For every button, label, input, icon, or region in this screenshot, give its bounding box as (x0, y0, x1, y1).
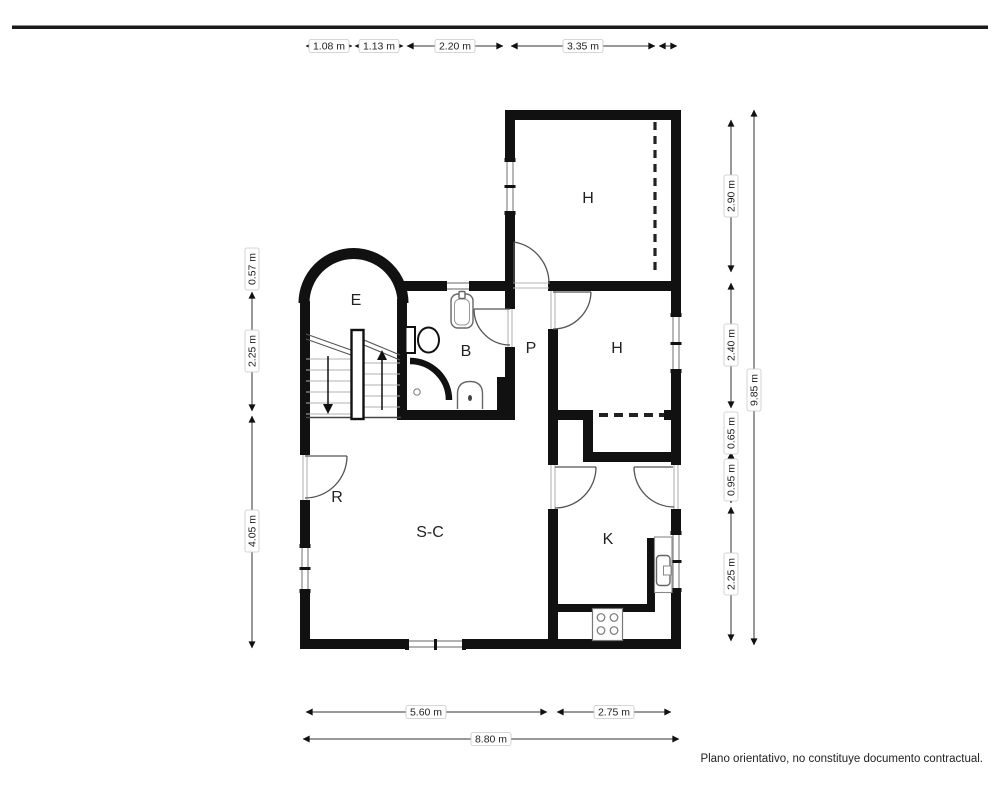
floor-plan-canvas: H E B P H R S-C K 1.08 m 1.13 m 2.20 m 3… (0, 0, 1000, 800)
dim-bottom-2-label: 2.75 m (598, 707, 630, 719)
dim-left-2: 2.25 m (245, 330, 259, 372)
dim-bottom-1: 5.60 m (406, 706, 446, 719)
stair-stringer (352, 330, 364, 419)
dim-bottom-2: 2.75 m (594, 706, 634, 719)
room-labels: H E B P H R S-C K (331, 190, 623, 548)
room-label-h-mid: H (611, 340, 623, 357)
kitchen-counter (655, 537, 673, 593)
door-bedroom-mid (551, 291, 591, 329)
dim-right-5: 2.25 m (724, 553, 738, 595)
dim-bottom-total: 8.80 m (471, 733, 511, 746)
dim-left-3: 4.05 m (245, 510, 259, 552)
dimensions-right: 2.90 m 2.40 m 0.65 m 0.95 m 2.25 m 9.85 … (724, 110, 761, 645)
dim-top-1-label: 1.08 m (313, 41, 345, 53)
dim-top-2: 1.13 m (359, 40, 399, 53)
dim-right-1-label: 2.90 m (726, 180, 738, 212)
dim-right-4: 0.95 m (724, 459, 738, 501)
dim-left-3-label: 4.05 m (247, 515, 259, 547)
dim-left-1: 0.57 m (245, 248, 259, 290)
window-living-left (300, 544, 311, 593)
floor-plan-page: H E B P H R S-C K 1.08 m 1.13 m 2.20 m 3… (0, 0, 1000, 800)
wall-pilaster (497, 377, 513, 417)
dim-top-3-label: 2.20 m (439, 41, 471, 53)
dim-right-5-label: 2.25 m (726, 558, 738, 590)
dim-top-2-label: 1.13 m (363, 41, 395, 53)
staircase (306, 330, 401, 419)
window-bedroom-mid-right (671, 313, 682, 373)
room-label-k: K (603, 531, 614, 548)
dim-right-2-label: 2.40 m (726, 329, 738, 361)
stair-arrow-up (377, 350, 387, 410)
bidet-icon (458, 382, 483, 410)
door-bedroom-top (513, 242, 549, 288)
dim-top-4: 3.35 m (563, 40, 603, 53)
room-label-sc: S-C (416, 524, 444, 541)
dim-right-3: 0.65 m (724, 412, 738, 454)
door-bathroom (474, 309, 512, 347)
dim-left-2-label: 2.25 m (247, 335, 259, 367)
door-kitchen-left (551, 465, 596, 509)
dim-right-3-label: 0.65 m (726, 417, 738, 449)
toilet-icon (406, 327, 440, 353)
dim-bottom-1-label: 5.60 m (410, 707, 442, 719)
room-label-b: B (461, 343, 472, 360)
dim-right-total: 9.85 m (747, 369, 761, 411)
dim-top-3: 2.20 m (435, 40, 475, 53)
dim-right-4-label: 0.95 m (726, 464, 738, 496)
dim-right-total-label: 9.85 m (749, 374, 761, 406)
window-bathroom-top (443, 281, 473, 291)
dimensions-bottom: 5.60 m 2.75 m 8.80 m (303, 706, 679, 746)
door-kitchen-right (634, 465, 678, 509)
kitchen-counter-wall (553, 538, 655, 612)
room-label-p: P (526, 340, 537, 357)
dim-top-1: 1.08 m (309, 40, 349, 53)
dim-bottom-total-label: 8.80 m (475, 734, 507, 746)
window-living-bottom (405, 639, 466, 650)
sink-icon (451, 292, 473, 329)
dim-right-1: 2.90 m (724, 175, 738, 217)
dim-left-1-label: 0.57 m (247, 253, 259, 285)
dim-right-2: 2.40 m (724, 324, 738, 366)
dimensions-left: 0.57 m 2.25 m 4.05 m (245, 248, 259, 648)
dimensions-top: 1.08 m 1.13 m 2.20 m 3.35 m (306, 40, 677, 53)
stove-icon (593, 609, 623, 641)
room-label-r: R (331, 489, 343, 506)
room-label-h-top: H (582, 190, 594, 207)
kitchen-fixtures (593, 537, 673, 641)
room-label-e: E (351, 292, 362, 309)
top-rule (12, 26, 988, 30)
shower-icon (410, 361, 449, 400)
window-bedroom-top-left (505, 158, 516, 215)
stair-arrow-down (323, 356, 333, 414)
disclaimer-text: Plano orientativo, no constituye documen… (700, 753, 983, 765)
dim-top-4-label: 3.35 m (567, 41, 599, 53)
